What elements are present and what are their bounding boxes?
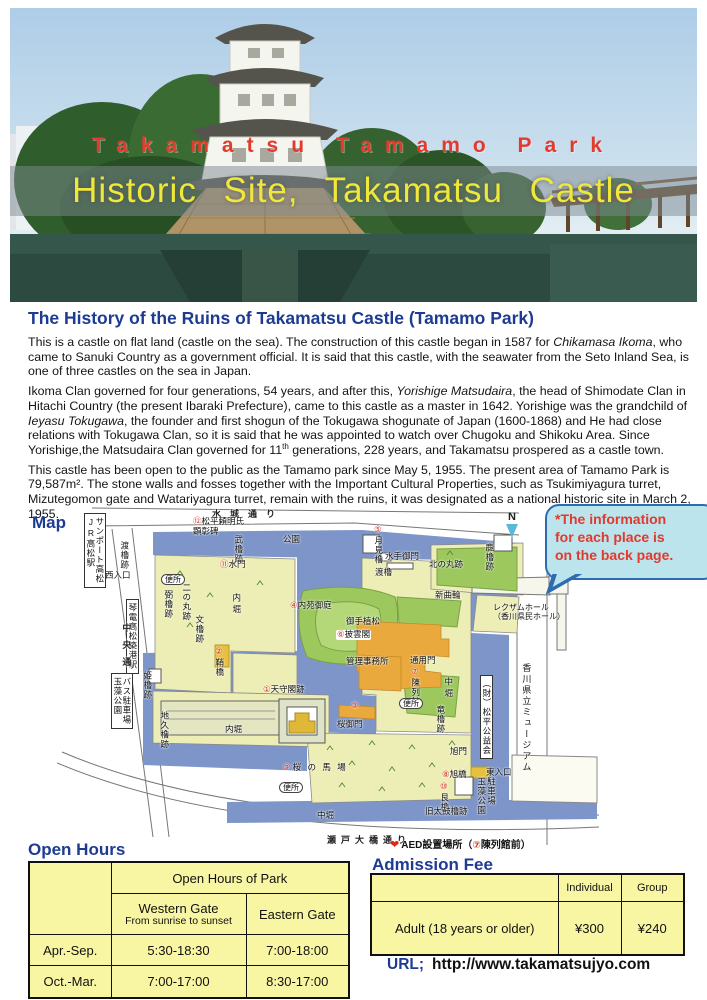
map-label: 中堀: [443, 677, 453, 700]
open-hours-corner-cell: [29, 862, 111, 935]
park-map: N 水城通り公園武櫓跡⑪水門⑫松平頼明氏 顕彰碑渡櫓跡西入口便所二の丸跡弼櫓跡文…: [57, 505, 612, 857]
map-number-badge: ⑥: [337, 629, 345, 639]
map-label: 北の丸跡: [429, 560, 463, 570]
map-label: ⑤月見櫓: [373, 525, 383, 565]
map-label: 桜御門: [337, 720, 363, 730]
map-number-badge: ⑪: [220, 559, 229, 569]
table-row: Adult (18 years or older) ¥300 ¥240: [371, 902, 684, 956]
eastern-hours-value: 8:30-17:00: [246, 966, 349, 999]
map-label: 内堀: [225, 725, 242, 735]
map-label: 二の丸跡: [181, 583, 191, 621]
map-number-badge: ⑦: [472, 840, 480, 851]
map-label: 内堀: [231, 593, 241, 616]
admission-fee-heading: Admission Fee: [372, 855, 493, 875]
western-gate-label: Western Gate: [139, 901, 219, 916]
map-label: ❤AED設置場所（⑦陳列館前）: [390, 839, 531, 852]
history-heading: The History of the Ruins of Takamatsu Ca…: [28, 308, 691, 329]
heart-icon: ❤: [390, 839, 399, 851]
hero-supertitle: Takamatsu Tamamo Park: [10, 134, 697, 158]
map-label: 公園: [283, 535, 300, 545]
map-label: ⑧旭橋: [442, 770, 467, 780]
table-row: Oct.-Mar. 7:00-17:00 8:30-17:00: [29, 966, 349, 999]
map-label: ⑫松平頼明氏 顕彰碑: [193, 517, 244, 537]
compass-needle-icon: [506, 524, 518, 538]
group-header: Group: [621, 874, 684, 902]
url-value: http://www.takamatsujyo.com: [432, 956, 650, 973]
map-label: 水手御門: [385, 552, 419, 562]
season-label: Oct.-Mar.: [29, 966, 111, 999]
western-gate-subtext: From sunrise to sunset: [116, 916, 242, 928]
open-hours-table: Open Hours of Park Western Gate From sun…: [28, 861, 350, 999]
map-number-badge: ③: [351, 700, 359, 710]
map-number-badge: ④: [290, 600, 298, 610]
map-label: 弼櫓跡: [163, 590, 173, 619]
website-url: URL;http://www.takamatsujyo.com: [387, 956, 650, 974]
western-hours-value: 7:00-17:00: [111, 966, 246, 999]
map-label: 西入口: [105, 571, 131, 581]
admission-fee-table: Individual Group Adult (18 years or olde…: [370, 873, 685, 956]
history-paragraphs: This is a castle on flat land (castle on…: [28, 335, 691, 521]
group-fee-value: ¥240: [621, 902, 684, 956]
map-label: ⑥披雲閣: [336, 630, 371, 640]
map-label: 渡櫓跡: [119, 541, 129, 570]
admission-corner-cell: [371, 874, 558, 902]
map-number-badge: ⑩: [440, 782, 450, 793]
map-label: ②鞘橋: [214, 647, 224, 677]
map-label: レクザムホール （香川県民ホール）: [493, 603, 565, 621]
map-label: ①天守閣跡: [263, 685, 305, 695]
map-label: 通用門: [410, 656, 436, 666]
hero-title-band: Historic Site, Takamatsu Castle: [10, 166, 697, 216]
compass-n-label: N: [506, 511, 518, 523]
history-paragraph: Ikoma Clan governed for four generations…: [28, 384, 691, 458]
individual-fee-value: ¥300: [558, 902, 621, 956]
adult-row-label: Adult (18 years or older): [371, 902, 558, 956]
map-number-badge: ①: [263, 684, 271, 694]
map-label: ⑨桜 の 馬 場: [283, 763, 348, 773]
map-number-badge: ⑧: [442, 769, 450, 779]
eastern-hours-value: 7:00-18:00: [246, 935, 349, 966]
map-label: 香川県立ミュージアム: [521, 663, 531, 773]
map-number-badge: ⑦: [411, 667, 421, 678]
map-label: 便所: [399, 698, 423, 709]
table-row: Apr.-Sep. 5:30-18:30 7:00-18:00: [29, 935, 349, 966]
map-label: （財）松平公益会: [480, 675, 493, 759]
map-label: 竜櫓跡: [435, 705, 445, 734]
map-label: 中堀: [317, 811, 334, 821]
map-label: 渡櫓: [375, 568, 392, 578]
map-label: 駐車場 玉藻公園: [476, 777, 496, 815]
map-label: ⑪水門: [220, 560, 246, 570]
season-label: Apr.-Sep.: [29, 935, 111, 966]
page: Takamatsu Tamamo Park Historic Site, Tak…: [0, 0, 707, 1000]
map-label: 姫櫓跡: [142, 671, 152, 700]
hero-title: Historic Site, Takamatsu Castle: [72, 171, 635, 211]
map-number-badge: ⑫: [193, 516, 202, 526]
open-hours-western-header: Western Gate From sunrise to sunset: [111, 894, 246, 935]
map-label: 管理事務所: [346, 657, 389, 667]
map-label: 旭門: [450, 747, 467, 757]
map-label: 新曲輪: [435, 591, 461, 601]
map-number-badge: ⑨: [283, 762, 293, 772]
history-paragraph: This is a castle on flat land (castle on…: [28, 335, 691, 379]
map-label: 地久櫓跡: [159, 711, 169, 749]
url-label: URL;: [387, 956, 424, 973]
map-label: 旧太鼓櫓跡: [425, 807, 468, 817]
open-hours-span-header: Open Hours of Park: [111, 862, 349, 894]
map-label: ④内苑御庭: [290, 601, 332, 611]
history-section: The History of the Ruins of Takamatsu Ca…: [28, 308, 691, 526]
map-label: サンポート高松 JR高松駅: [84, 513, 106, 588]
map-label: バス駐車場 玉藻公園: [111, 673, 133, 729]
map-label: 文櫓跡: [194, 615, 204, 644]
map-label: 御手植松: [346, 617, 380, 627]
map-label: 鹿櫓跡: [484, 543, 494, 572]
compass-icon: N: [506, 511, 518, 538]
western-hours-value: 5:30-18:30: [111, 935, 246, 966]
back-page-note: *The information for each place is on th…: [545, 504, 707, 580]
map-label: ③: [351, 701, 359, 711]
map-number-badge: ⑤: [374, 525, 384, 536]
map-label: 便所: [279, 782, 303, 793]
open-hours-eastern-header: Eastern Gate: [246, 894, 349, 935]
individual-header: Individual: [558, 874, 621, 902]
hero-photo: Takamatsu Tamamo Park Historic Site, Tak…: [10, 8, 697, 302]
map-number-badge: ②: [215, 647, 225, 658]
